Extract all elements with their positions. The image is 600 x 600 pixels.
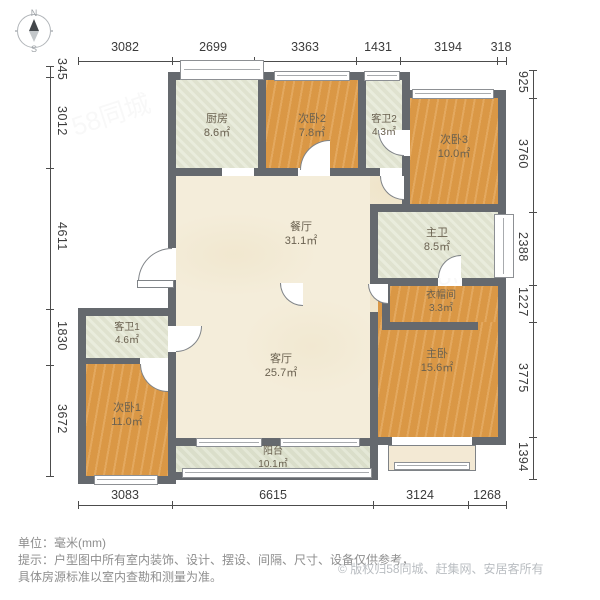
wall xyxy=(176,478,378,480)
wall xyxy=(168,168,222,176)
dim-tick xyxy=(529,70,537,71)
dim-tick xyxy=(172,501,173,509)
dim-tick xyxy=(529,479,537,480)
dim-tick xyxy=(78,57,79,65)
dim-label: 3124 xyxy=(406,488,434,502)
dim-tick xyxy=(529,212,537,213)
wall xyxy=(168,308,176,326)
dim-tick xyxy=(46,309,54,310)
dim-label: 3012 xyxy=(55,106,69,136)
room-label-dining: 餐厅31.1㎡ xyxy=(266,220,336,248)
dim-tick xyxy=(46,77,54,78)
dim-line-bottom xyxy=(78,505,507,506)
dim-label: 3672 xyxy=(55,404,69,434)
compass-north-label: N xyxy=(31,8,38,18)
room-label-bedroom3: 次卧310.0㎡ xyxy=(419,133,489,161)
compass-needle-south xyxy=(29,31,39,42)
window-bedroom3 xyxy=(412,89,494,99)
dim-label: 1830 xyxy=(55,321,69,351)
dim-tick xyxy=(506,501,507,509)
window-bedroom2 xyxy=(274,71,350,81)
window-glass-line xyxy=(184,69,260,70)
wall xyxy=(258,80,266,168)
compass-east-dot xyxy=(51,30,53,32)
room-label-master-bath: 主卫8.5㎡ xyxy=(402,226,472,254)
window-glass xyxy=(394,462,470,470)
dim-tick xyxy=(46,365,54,366)
dim-tick xyxy=(46,66,54,67)
room-label-master-bedroom: 主卧15.6㎡ xyxy=(402,347,472,375)
dim-tick xyxy=(506,57,507,65)
dim-label: 3760 xyxy=(516,139,530,169)
wall xyxy=(370,312,378,445)
window-glass-line xyxy=(97,479,155,480)
dim-label: 1431 xyxy=(364,40,392,54)
wall xyxy=(254,168,298,176)
dim-tick xyxy=(46,168,54,169)
dim-line-top xyxy=(78,61,507,62)
wall xyxy=(370,204,506,212)
dim-label: 4611 xyxy=(55,222,69,251)
dim-tick xyxy=(529,98,537,99)
dim-tick xyxy=(78,501,79,509)
room-label-kitchen: 厨房8.6㎡ xyxy=(182,112,252,140)
wall xyxy=(370,204,378,286)
room-dining-living xyxy=(176,176,370,438)
wall xyxy=(498,286,506,445)
window-glass-line xyxy=(199,442,259,443)
dim-label: 318 xyxy=(491,40,512,54)
door-leaf-entry xyxy=(137,280,174,288)
wall xyxy=(86,358,140,364)
compass-icon: N S xyxy=(14,11,54,51)
wall xyxy=(78,308,176,316)
window-glass-line xyxy=(367,75,397,76)
copyright-icon: © xyxy=(338,562,347,576)
copyright-text: 版权归58同城、赶集网、安居客所有 xyxy=(350,562,543,576)
dim-tick xyxy=(356,57,357,65)
dim-label: 1227 xyxy=(516,287,530,317)
compass-south-label: S xyxy=(31,44,37,54)
room-label-bath1: 客卫14.6㎡ xyxy=(92,321,162,347)
dim-tick xyxy=(468,501,469,509)
room-label-cloakroom: 衣帽间3.3㎡ xyxy=(406,289,476,315)
dim-label: 3775 xyxy=(516,363,530,393)
dim-label: 345 xyxy=(55,58,69,80)
dim-tick xyxy=(172,57,173,65)
dim-label: 2699 xyxy=(199,40,227,54)
wall xyxy=(78,308,86,484)
wall xyxy=(498,90,506,214)
wall xyxy=(168,72,176,248)
watermark: 58同城 xyxy=(66,83,154,143)
copyright-note: © 版权归58同城、赶集网、安居客所有 xyxy=(338,560,544,577)
window-kitchen-bay xyxy=(180,60,264,80)
window-glass-line xyxy=(277,75,347,76)
window-bedroom1 xyxy=(94,475,158,485)
window-glass-line xyxy=(415,93,491,94)
dim-tick xyxy=(497,57,498,65)
dim-line-right xyxy=(533,70,534,479)
dim-tick xyxy=(400,57,401,65)
floor-plan-page: 58同城 58同城 N S 3082 2699 3363 1431 3194 3… xyxy=(0,0,600,600)
dim-label: 3082 xyxy=(111,40,139,54)
window-glass-line xyxy=(397,465,467,466)
dim-label: 3083 xyxy=(111,488,139,502)
dim-tick xyxy=(373,501,374,509)
window-bath2 xyxy=(364,71,400,81)
dim-tick xyxy=(529,285,537,286)
dim-line-left xyxy=(50,66,51,476)
wall xyxy=(382,322,478,330)
dim-label: 925 xyxy=(516,71,530,93)
window-glass-line xyxy=(283,442,357,443)
dim-label: 3194 xyxy=(434,40,462,54)
dim-label: 3363 xyxy=(291,40,319,54)
wall xyxy=(158,476,176,484)
compass-needle-north xyxy=(29,19,39,31)
wall xyxy=(378,437,392,445)
wall xyxy=(462,278,506,286)
wall xyxy=(330,168,380,176)
room-label-bedroom2: 次卧27.8㎡ xyxy=(277,112,347,140)
room-label-bedroom1: 次卧111.0㎡ xyxy=(92,401,162,429)
dim-tick xyxy=(529,322,537,323)
dim-label: 6615 xyxy=(259,488,287,502)
window-glass-line xyxy=(503,218,504,274)
dim-tick xyxy=(46,476,54,477)
compass-west-dot xyxy=(15,30,17,32)
dim-label: 1394 xyxy=(516,442,530,472)
wall xyxy=(168,352,176,476)
window-master-bath-bay xyxy=(494,214,514,278)
room-label-balcony: 阳台10.1㎡ xyxy=(238,445,308,471)
door-arc-entry xyxy=(138,248,172,282)
room-label-living: 客厅25.7㎡ xyxy=(246,352,316,380)
room-label-bath2: 客卫24.3㎡ xyxy=(352,113,416,139)
tip-line-2: 具体房源标准以室内查勘和测量为准。 xyxy=(18,568,222,585)
unit-note: 单位：毫米(mm) xyxy=(18,534,106,551)
dim-label: 1268 xyxy=(473,488,501,502)
window-glass-line xyxy=(185,472,369,473)
dim-label: 2388 xyxy=(516,232,530,262)
dim-tick xyxy=(529,437,537,438)
